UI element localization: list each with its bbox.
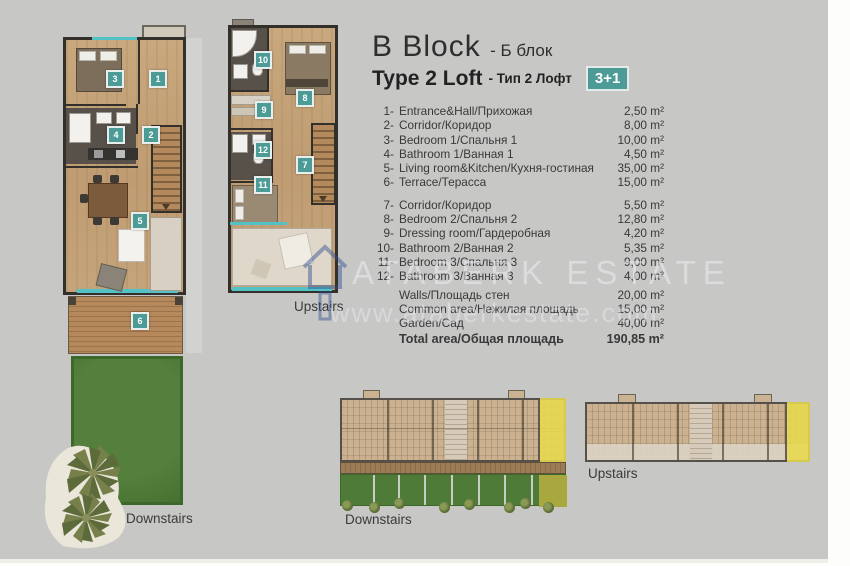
badge-number: 4: [113, 130, 118, 140]
stove: [94, 150, 103, 158]
room-num: 5-: [372, 161, 394, 175]
room-num: 7-: [372, 198, 394, 212]
site-building-row: [585, 402, 810, 462]
room-area: 4,20 m²: [624, 226, 664, 240]
shower: [69, 113, 91, 143]
coffee-table: [118, 229, 145, 262]
info-panel: B Block - Б блок Type 2 Loft - Тип 2 Лоф…: [372, 30, 672, 91]
chair: [93, 217, 102, 225]
pillow: [79, 51, 96, 61]
badge-number: 1: [155, 74, 160, 84]
washing-machine: [116, 112, 131, 124]
highlighted-unit: [538, 398, 566, 462]
room-badge-11: 11: [254, 176, 272, 194]
room-name: Dressing room/Гардеробная: [394, 226, 624, 240]
terrace-post: [68, 297, 76, 305]
wall: [136, 104, 138, 134]
room-badge-8: 8: [296, 89, 314, 107]
shower: [232, 134, 248, 153]
tree-icon: [439, 502, 450, 513]
room-name: Terrace/Терасса: [394, 175, 617, 189]
palm-trees-icon: [38, 438, 148, 553]
tree-icon: [394, 498, 405, 509]
wall: [231, 90, 269, 92]
wall: [66, 166, 138, 168]
room-num: 1-: [372, 104, 394, 118]
badge-number: 10: [258, 55, 268, 65]
room-row: 10-Bathroom 2/Ванная 25,35 m²: [372, 241, 664, 255]
total-name: Total area/Общая площадь: [394, 332, 607, 346]
room-area: 8,00 m²: [624, 118, 664, 132]
pillow: [235, 206, 244, 220]
pillow: [289, 45, 306, 54]
room-name: Bedroom 2/Спальня 2: [394, 212, 617, 226]
badge-number: 6: [137, 316, 142, 326]
unit-separator: [387, 400, 389, 460]
garden-separator: [451, 475, 453, 505]
terrace-post: [175, 297, 183, 305]
badge-number: 12: [258, 145, 268, 155]
badge-number: 3: [112, 74, 117, 84]
room-row: 3-Bedroom 1/Спальня 110,00 m²: [372, 133, 664, 147]
room-row: 1-Entrance&Hall/Прихожая2,50 m²: [372, 104, 664, 118]
unit-separator: [722, 404, 724, 460]
garden-separator: [373, 475, 375, 505]
garden-separator: [478, 475, 480, 505]
unit-separator: [477, 400, 479, 460]
room-badge-4: 4: [107, 126, 125, 144]
kitchen-counter: [88, 148, 138, 160]
room-area: 4,50 m²: [624, 147, 664, 161]
wall: [66, 104, 126, 106]
block-title-en: B Block: [372, 30, 481, 63]
room-badge-3: 3: [106, 70, 124, 88]
room-num: 2-: [372, 118, 394, 132]
pillow: [100, 51, 117, 61]
site-building-row: [340, 398, 566, 462]
room-area: 35,00 m²: [617, 161, 664, 175]
side-yard: [186, 38, 202, 353]
room-num: 4-: [372, 147, 394, 161]
garden-separator: [504, 475, 506, 505]
wall: [138, 40, 140, 104]
badge-number: 9: [261, 105, 266, 115]
window-bedroom3: [230, 222, 287, 225]
room-row: 8-Bedroom 2/Спальня 212,80 m²: [372, 212, 664, 226]
window-top: [92, 37, 137, 40]
room-row: 5-Living room&Kitchen/Кухня-гостиная35,0…: [372, 161, 664, 175]
room-badge-9: 9: [255, 101, 273, 119]
garden-separator: [424, 475, 426, 505]
room-name: Bathroom 2/Ванная 2: [394, 241, 624, 255]
room-row: 7-Corridor/Коридор5,50 m²: [372, 198, 664, 212]
room-num: 3-: [372, 133, 394, 147]
chair: [93, 175, 102, 183]
stair-core: [445, 400, 467, 460]
chair: [110, 217, 119, 225]
downstairs-label: Downstairs: [126, 511, 193, 526]
tree-icon: [504, 502, 515, 513]
siteplan-upstairs: Upstairs: [585, 390, 810, 485]
block-title: B Block - Б блок: [372, 30, 672, 64]
site-upstairs-label: Upstairs: [588, 466, 638, 481]
total-row: Total area/Общая площадь190,85 m²: [372, 332, 664, 346]
block-title-ru: - Б блок: [490, 41, 552, 60]
site-deck-strip: [340, 462, 566, 474]
bed: [285, 42, 331, 95]
badge-number: 2: [148, 130, 153, 140]
floorplan-page: 1 2 3 4 5 6 Downstairs: [0, 0, 850, 566]
room-name: Bathroom 1/Ванная 1: [394, 147, 624, 161]
badge-number: 5: [137, 216, 142, 226]
stair-core: [690, 404, 712, 460]
room-badge-1: 1: [149, 70, 167, 88]
total-area: 190,85 m²: [607, 332, 664, 346]
tree-icon: [543, 502, 554, 513]
tree-icon: [342, 500, 353, 511]
room-area: 5,50 m²: [624, 198, 664, 212]
badge-number: 8: [302, 93, 307, 103]
unit-separator: [677, 404, 679, 460]
room-badge-5: 5: [131, 212, 149, 230]
room-badge-7: 7: [296, 156, 314, 174]
pillow: [309, 45, 326, 54]
room-badge-2: 2: [142, 126, 160, 144]
washing-machine: [233, 64, 248, 79]
room-area: 5,35 m²: [624, 241, 664, 255]
room-row: 6-Terrace/Терасса15,00 m²: [372, 175, 664, 189]
corridor-line: [342, 428, 564, 429]
pillow: [235, 189, 244, 203]
room-badge-10: 10: [254, 51, 272, 69]
type-title-en: Type 2 Loft: [372, 67, 482, 91]
room-num: 6-: [372, 175, 394, 189]
room-num: 8-: [372, 212, 394, 226]
kitchen-sink: [116, 150, 125, 158]
tree-icon: [464, 499, 475, 510]
unit-separator: [767, 404, 769, 460]
room-badge-6: 6: [131, 312, 149, 330]
chair: [110, 175, 119, 183]
unit-separator: [432, 400, 434, 460]
badge-number: 11: [258, 180, 268, 190]
staircase-up: [311, 123, 336, 205]
void-furniture: [251, 259, 272, 280]
type-title-ru: - Тип 2 Лофт: [488, 71, 571, 86]
site-downstairs-label: Downstairs: [345, 512, 412, 527]
room-row: 2-Corridor/Коридор8,00 m²: [372, 118, 664, 132]
room-name: Living room&Kitchen/Кухня-гостиная: [394, 161, 617, 175]
sink: [96, 112, 112, 124]
unit-separator: [632, 404, 634, 460]
stairs-arrow-icon: [319, 196, 327, 202]
room-badge-12: 12: [254, 141, 272, 159]
sofa: [150, 217, 182, 291]
room-area: 15,00 m²: [617, 175, 664, 189]
tree-icon: [520, 498, 531, 509]
highlighted-garden: [539, 475, 567, 507]
room-num: 10-: [372, 241, 394, 255]
highlighted-unit: [785, 402, 810, 462]
room-name: Corridor/Коридор: [394, 118, 624, 132]
dining-table: [88, 183, 128, 218]
bottom-border: [0, 559, 828, 563]
unit-separator: [522, 400, 524, 460]
garden-separator: [531, 475, 533, 505]
stairs-arrow-icon: [162, 204, 170, 210]
room-row: 9-Dressing room/Гардеробная4,20 m²: [372, 226, 664, 240]
chair: [80, 194, 88, 203]
watermark-url: www.ataberkestate.com: [330, 298, 659, 329]
room-name: Entrance&Hall/Прихожая: [394, 104, 624, 118]
room-area: 2,50 m²: [624, 104, 664, 118]
bed-throw: [286, 79, 328, 87]
terrace-deck: [68, 296, 183, 354]
room-area: 12,80 m²: [617, 212, 664, 226]
watermark-name: ATABERK ESTATE: [352, 254, 732, 292]
rooms-count-badge: 3+1: [586, 66, 629, 91]
room-num: 9-: [372, 226, 394, 240]
siteplan-downstairs: Downstairs: [340, 390, 566, 530]
type-title: Type 2 Loft - Тип 2 Лофт 3+1: [372, 66, 672, 91]
room-area: 10,00 m²: [617, 133, 664, 147]
wall: [231, 128, 273, 130]
badge-number: 7: [302, 160, 307, 170]
room-name: Corridor/Коридор: [394, 198, 624, 212]
room-row: 4-Bathroom 1/Ванная 14,50 m²: [372, 147, 664, 161]
room-name: Bedroom 1/Спальня 1: [394, 133, 617, 147]
